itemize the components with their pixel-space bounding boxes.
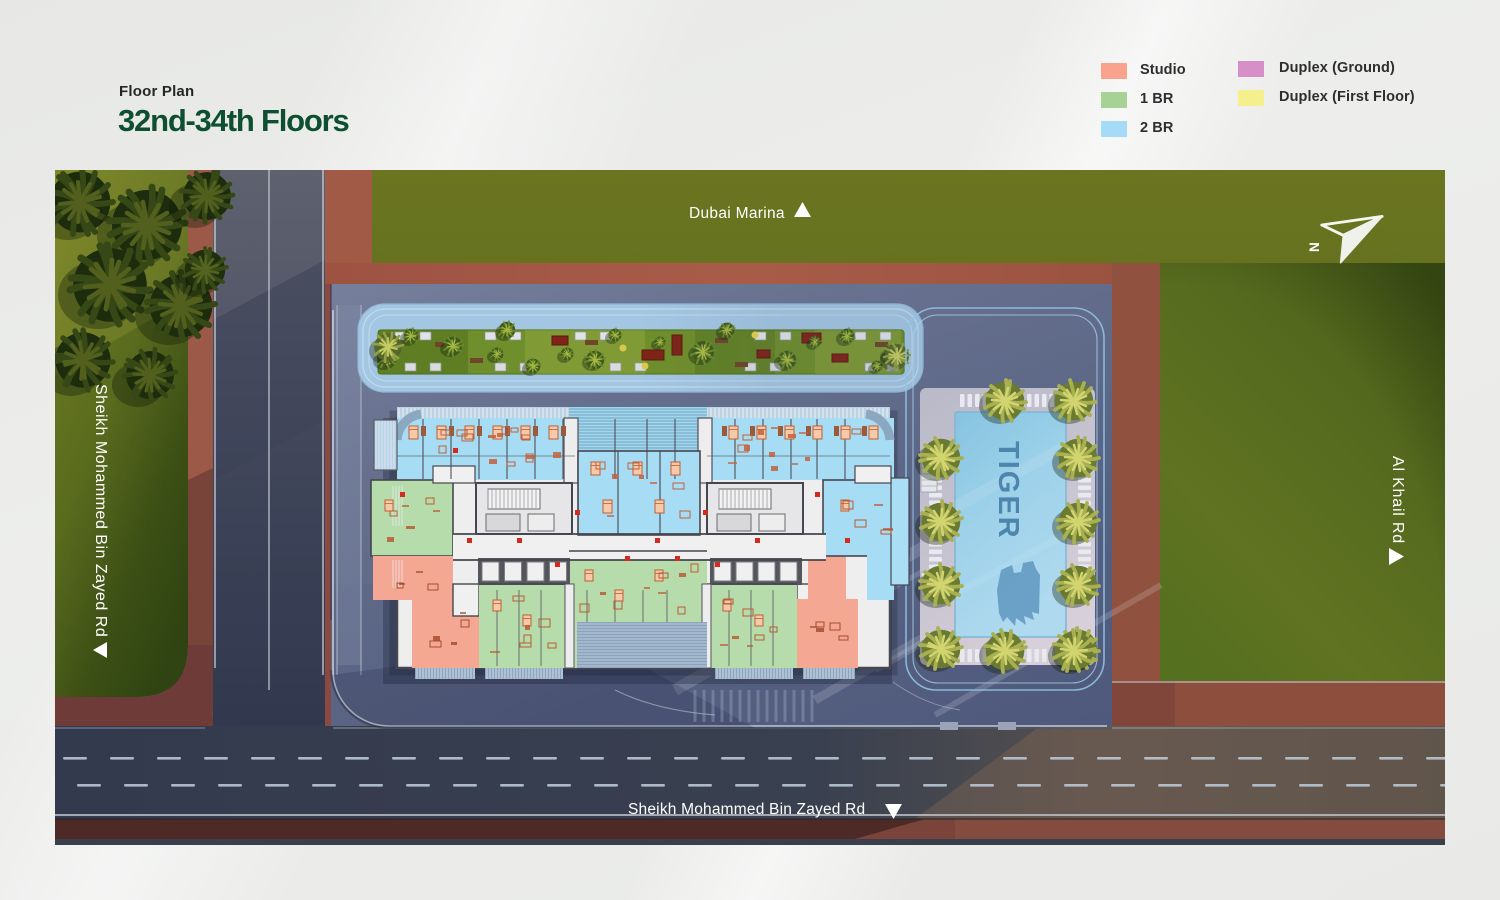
svg-text:Sheikh Mohammed Bin Zayed Rd: Sheikh Mohammed Bin Zayed Rd [628, 801, 865, 818]
svg-text:N: N [1307, 242, 1322, 252]
svg-text:TIGER: TIGER [992, 441, 1024, 540]
svg-text:Al Khail Rd: Al Khail Rd [1389, 456, 1406, 544]
svg-text:Dubai Marina: Dubai Marina [689, 205, 785, 222]
svg-text:Sheikh Mohammed Bin Zayed Rd: Sheikh Mohammed Bin Zayed Rd [92, 384, 109, 637]
